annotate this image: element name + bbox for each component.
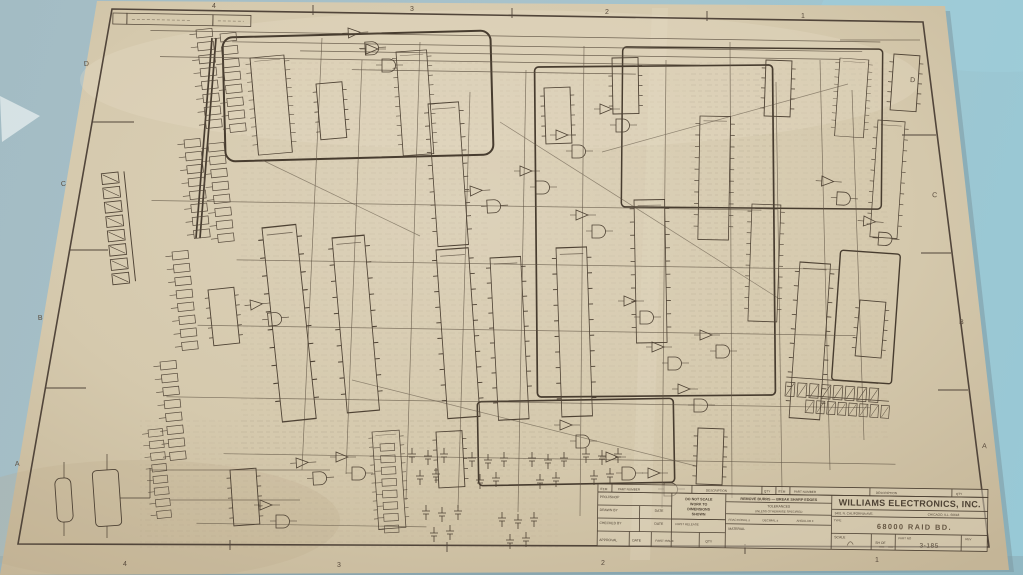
- zone-letter-left-c: C: [61, 181, 66, 188]
- unless-otherwise-label: UNLESS OTHERWISE SPECIFIED: [755, 509, 804, 514]
- fractional-label: FRACTIONAL ±: [728, 518, 750, 522]
- parts-header-part-number: PART NUMBER: [618, 487, 641, 491]
- company-city: CHICAGO, ILL. 60618: [928, 513, 960, 517]
- proj-shop-label: PROJ/SHOP: [600, 495, 620, 499]
- zone-number-top-3: 3: [410, 6, 414, 13]
- first-issue-label: FIRST ISSUE: [655, 539, 674, 543]
- part-no-value: 3-185: [919, 542, 938, 549]
- part-no-label: PART NO: [898, 536, 912, 540]
- checked-by-label: CHECKED BY: [599, 521, 622, 525]
- dns-line-2: WORK TO: [690, 502, 708, 506]
- zone-number-bottom-4: 4: [123, 561, 127, 568]
- photo-of-schematic: D C B A D C B A 4 3 2 1 4 3 2 1: [0, 0, 1023, 575]
- zone-number-bottom-3: 3: [337, 562, 341, 569]
- title-block: ITEM PART NUMBER DESCRIPTION QTY ITEM PA…: [597, 484, 988, 551]
- zone-letter-right-c: C: [932, 192, 937, 199]
- table-reflection: [0, 96, 40, 142]
- zone-number-top-1: 1: [801, 13, 805, 20]
- zone-number-bottom-2: 2: [601, 560, 605, 567]
- scale-label: SCALE: [834, 535, 846, 539]
- approval-date-label: DATE: [632, 538, 642, 542]
- rev-label: REV: [965, 537, 971, 541]
- company-address: 3401 N. CALIFORNIA AVE.: [835, 511, 874, 516]
- zone-letter-right-d: D: [910, 77, 915, 84]
- angular-label: ANGULAR ±: [796, 519, 813, 523]
- zone-letter-right-b: B: [959, 319, 964, 326]
- zone-number-top-4: 4: [212, 3, 216, 10]
- drawing-title: 68000 RAID BD.: [877, 522, 952, 532]
- zone-letter-left-a: A: [15, 461, 20, 468]
- qty-label: QTY: [705, 540, 713, 544]
- zone-letter-left-b: B: [38, 315, 43, 322]
- sheet-of-label: SH OF: [875, 541, 885, 545]
- tolerances-label: TOLERANCES: [767, 504, 791, 508]
- drawn-by-label: DRAWN BY: [600, 508, 619, 512]
- zone-letter-left-d: D: [84, 61, 89, 68]
- zone-number-bottom-1: 1: [875, 557, 879, 564]
- type-label: TYPE: [833, 518, 841, 522]
- parts-header-description: DESCRIPTION: [706, 489, 727, 493]
- dns-line-4: SHOWN: [692, 512, 706, 516]
- decimal-label: DECIMAL ±: [762, 518, 778, 522]
- drawn-date-label: DATE: [655, 509, 665, 513]
- material-label: MATERIAL: [728, 527, 745, 531]
- first-release-label: FIRST RELEASE: [675, 522, 698, 526]
- zone-number-top-2: 2: [605, 9, 609, 16]
- approval-label: APPROVAL: [599, 538, 617, 542]
- dns-line-3: DIMENSIONS: [687, 507, 710, 511]
- parts-header-description-2: DESCRIPTION: [876, 491, 897, 495]
- parts-header-qty: QTY: [764, 489, 770, 493]
- schematic-photo: D C B A D C B A 4 3 2 1 4 3 2 1: [0, 0, 1023, 575]
- parts-header-qty-2: QTY: [956, 492, 962, 496]
- parts-header-item: ITEM: [600, 487, 608, 491]
- company-name: WILLIAMS ELECTRONICS, INC.: [839, 497, 981, 509]
- parts-header-item-2: ITEM: [778, 490, 786, 494]
- checked-date-label: DATE: [654, 522, 664, 526]
- zone-letter-right-a: A: [982, 443, 987, 450]
- dns-line-1: DO NOT SCALE: [685, 497, 713, 501]
- parts-header-part-number-2: PART NUMBER: [794, 490, 817, 494]
